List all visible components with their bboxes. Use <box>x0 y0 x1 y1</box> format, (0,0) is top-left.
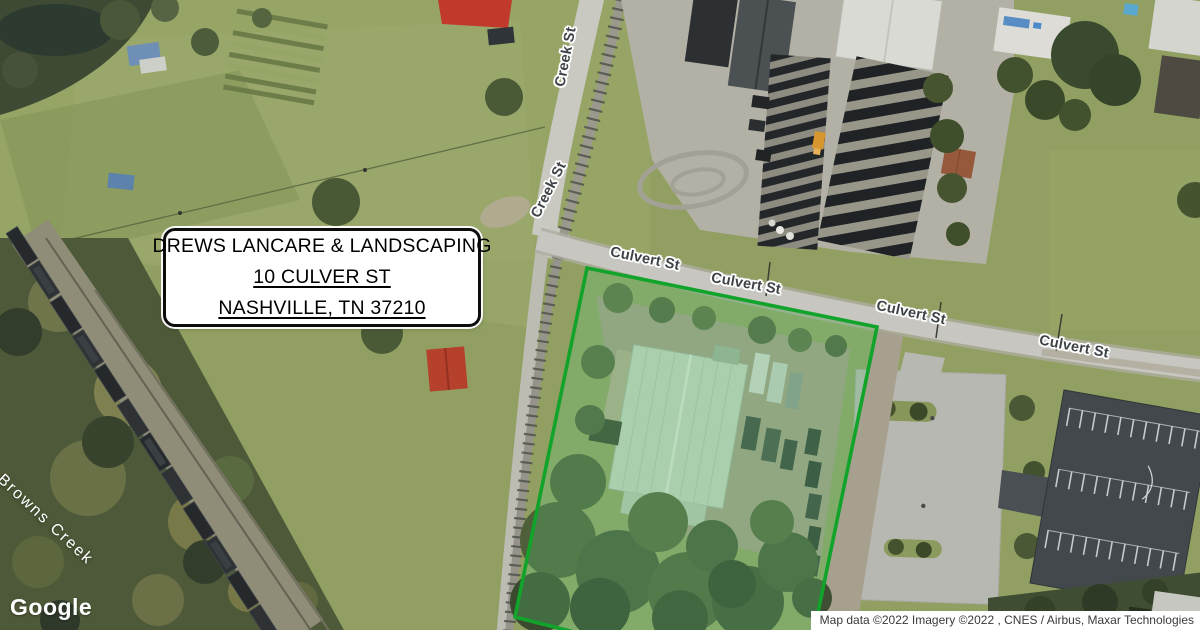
business-address-city: NASHVILLE, TN 37210 <box>218 295 425 322</box>
business-address-street: 10 CULVER ST <box>253 264 391 291</box>
map-share-card: Creek St Creek St Culvert St Culvert St … <box>0 0 1200 630</box>
business-name: DREWS LANCARE & LANDSCAPING <box>152 233 491 260</box>
map-attribution-bar: Map data ©2022 Imagery ©2022 , CNES / Ai… <box>811 611 1200 630</box>
google-logo: Google <box>10 594 92 621</box>
business-annotation-card: DREWS LANCARE & LANDSCAPING 10 CULVER ST… <box>163 228 481 327</box>
red-roof-shed <box>426 346 468 391</box>
map-attribution-text: Map data ©2022 Imagery ©2022 , CNES / Ai… <box>820 611 1194 630</box>
